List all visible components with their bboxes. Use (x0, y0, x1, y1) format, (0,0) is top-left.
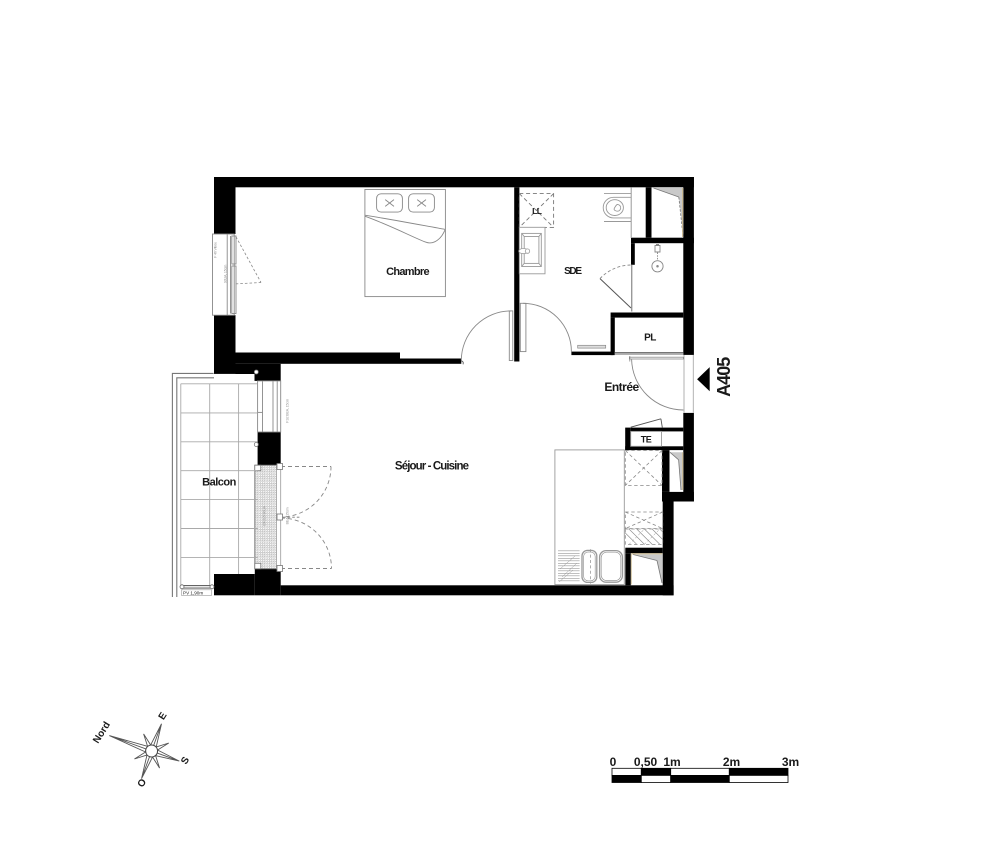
svg-text:PL: PL (644, 333, 656, 344)
svg-text:Balcon: Balcon (202, 476, 236, 488)
svg-text:PV 1,90m: PV 1,90m (183, 590, 203, 595)
svg-text:SDE: SDE (564, 266, 582, 277)
svg-text:1m: 1m (663, 755, 680, 769)
svg-text:2m: 2m (723, 755, 740, 769)
svg-text:0: 0 (610, 755, 617, 769)
svg-text:A405: A405 (714, 357, 734, 397)
svg-text:3m: 3m (782, 755, 799, 769)
svg-text:Séjour - Cuisine: Séjour - Cuisine (395, 460, 469, 472)
svg-text:F.92 BEA, 15cm: F.92 BEA, 15cm (286, 399, 290, 423)
svg-text:Entrée: Entrée (604, 380, 639, 394)
svg-text:LL: LL (532, 206, 542, 216)
svg-text:90UA, 15cm: 90UA, 15cm (224, 265, 228, 283)
svg-text:CF.215 90UA: CF.215 90UA (263, 505, 267, 525)
svg-text:Chambre: Chambre (386, 266, 429, 278)
svg-text:0,50: 0,50 (634, 755, 658, 769)
svg-text:F 46 Vitrée: F 46 Vitrée (214, 242, 218, 258)
svg-text:TE: TE (641, 434, 652, 444)
